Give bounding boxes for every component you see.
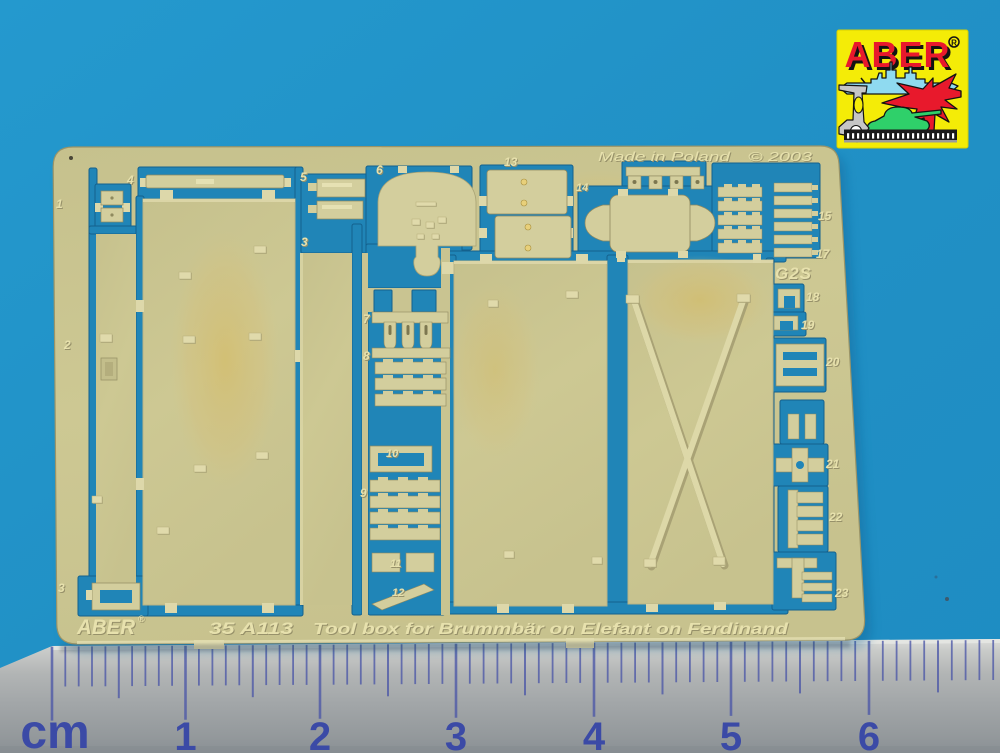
svg-text:22: 22 bbox=[828, 510, 843, 524]
svg-text:Tool box for Brummbär on Elefa: Tool box for Brummbär on Elefant on Ferd… bbox=[313, 621, 789, 638]
svg-text:2: 2 bbox=[309, 715, 331, 753]
svg-text:3: 3 bbox=[301, 235, 308, 249]
svg-text:13: 13 bbox=[504, 155, 518, 169]
svg-text:3: 3 bbox=[58, 581, 65, 595]
svg-text:19: 19 bbox=[801, 318, 815, 332]
svg-text:© 2003: © 2003 bbox=[748, 149, 813, 164]
svg-text:cm: cm bbox=[20, 706, 89, 753]
svg-text:R: R bbox=[951, 39, 957, 48]
svg-text:21: 21 bbox=[825, 457, 840, 471]
svg-text:Made in Poland: Made in Poland bbox=[598, 149, 731, 164]
svg-text:G2S: G2S bbox=[775, 264, 812, 283]
svg-text:3: 3 bbox=[445, 715, 467, 753]
svg-text:ABER: ABER bbox=[76, 616, 136, 639]
svg-text:1: 1 bbox=[56, 197, 63, 211]
svg-text:5: 5 bbox=[300, 170, 307, 184]
svg-text:9: 9 bbox=[360, 486, 367, 500]
svg-text:8: 8 bbox=[363, 349, 370, 363]
svg-text:®: ® bbox=[138, 614, 145, 624]
svg-text:35 A113: 35 A113 bbox=[209, 619, 294, 638]
svg-text:12: 12 bbox=[392, 587, 404, 599]
svg-text:20: 20 bbox=[825, 355, 840, 369]
svg-text:4: 4 bbox=[126, 173, 134, 187]
svg-text:10: 10 bbox=[386, 448, 399, 460]
svg-text:14: 14 bbox=[576, 182, 588, 194]
svg-text:4: 4 bbox=[583, 715, 606, 753]
svg-text:6: 6 bbox=[376, 163, 383, 177]
svg-text:17: 17 bbox=[816, 247, 831, 261]
svg-text:5: 5 bbox=[720, 715, 742, 753]
svg-text:15: 15 bbox=[818, 209, 832, 223]
svg-text:ABER: ABER bbox=[845, 34, 951, 75]
svg-text:11: 11 bbox=[390, 558, 401, 570]
svg-text:23: 23 bbox=[834, 586, 849, 600]
svg-text:18: 18 bbox=[806, 290, 820, 304]
svg-text:2: 2 bbox=[63, 338, 71, 352]
svg-text:6: 6 bbox=[858, 715, 880, 753]
svg-text:1: 1 bbox=[174, 715, 196, 753]
